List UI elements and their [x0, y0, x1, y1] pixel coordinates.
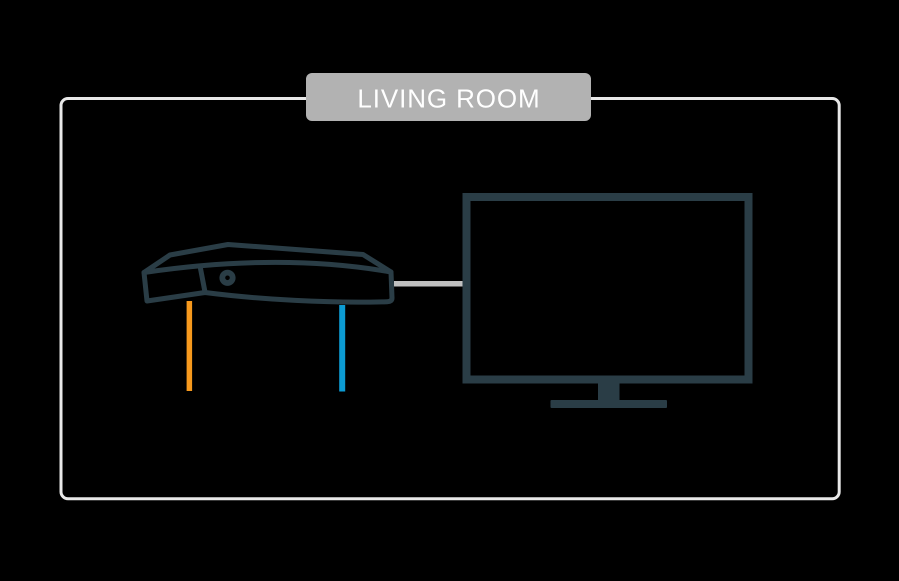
- svg-text:LIVING ROOM: LIVING ROOM: [357, 84, 540, 114]
